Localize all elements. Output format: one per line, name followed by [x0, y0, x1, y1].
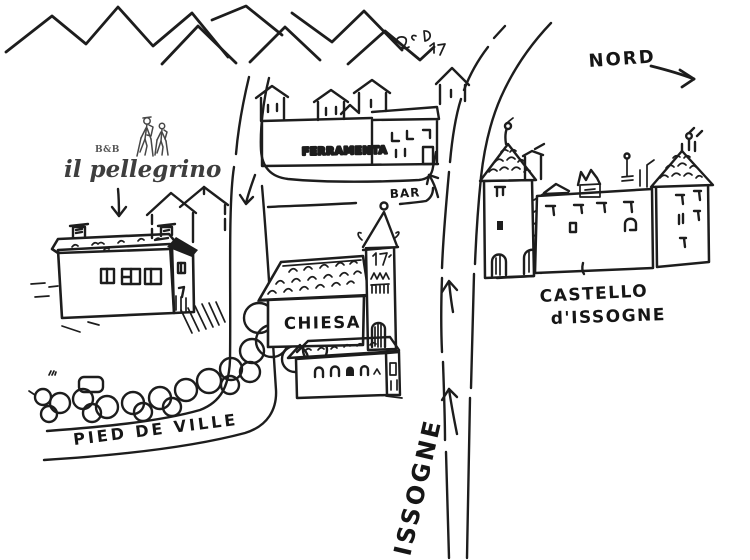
castle-building: CASTELLO d'ISSOGNE [480, 118, 713, 329]
road-west-left-edge [236, 77, 249, 154]
road-label-issogne: ISSOGNE [389, 416, 448, 559]
small-house-outline [436, 68, 469, 104]
north-indicator: NORD [588, 46, 694, 87]
castle-label-line2: d'ISSOGNE [550, 305, 666, 329]
mountain-range [6, 6, 434, 64]
ground-dashes [31, 283, 99, 332]
hikers-icon [137, 117, 168, 156]
logo-pointer-arrow-icon [112, 189, 126, 216]
road-branch-bottom-edge [268, 203, 356, 207]
north-label: NORD [588, 46, 656, 72]
hardware-store-building: FERRAMENTA [256, 80, 439, 166]
hand-drawn-map: NORD [0, 0, 750, 560]
brand-logo: B&B il pellegrino [64, 117, 221, 216]
bar-label: BAR [389, 185, 420, 201]
brand-name-label: il pellegrino [64, 156, 221, 183]
road-main-right-edge [467, 23, 551, 558]
bnb-building [52, 224, 198, 318]
direction-arrow-up-1-icon [442, 281, 457, 312]
castle-label-line1: CASTELLO [539, 281, 649, 307]
direction-arrow-down-icon [240, 175, 255, 204]
walkway-hatching [181, 302, 225, 333]
church-building: CHIESA [258, 203, 402, 399]
north-arrow-icon [651, 66, 694, 87]
tower-hatching [176, 296, 186, 311]
handwriting-doodle [396, 31, 445, 55]
brand-bnb-label: B&B [95, 145, 120, 155]
castle-right-tower [651, 128, 713, 267]
street-label-pied-de-ville: PIED DE VILLE [72, 410, 239, 449]
church-label: CHIESA [284, 313, 361, 333]
hardware-store-label: FERRAMENTA [302, 145, 388, 158]
